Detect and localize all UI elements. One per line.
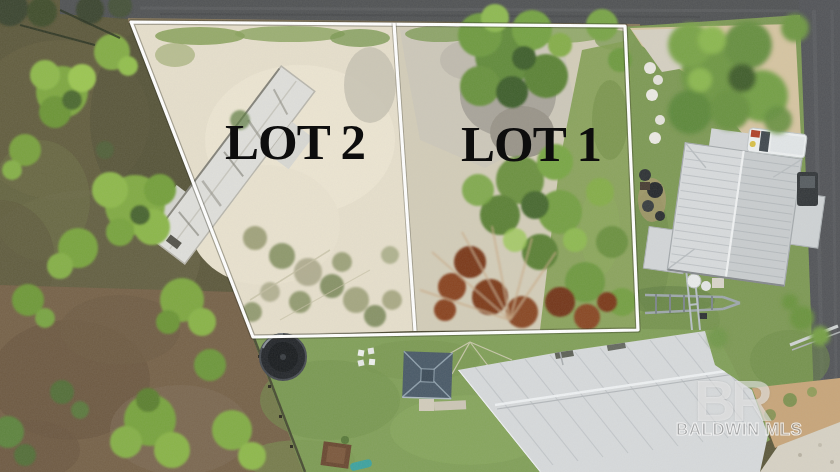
lot2-label: LOT 2 — [225, 117, 365, 168]
lot1-label: LOT 1 — [461, 119, 601, 170]
watermark-text: BALDWIN MLS — [676, 421, 802, 438]
aerial-photo: LOT 2 LOT 1 BR BALDWIN MLS — [0, 0, 840, 472]
